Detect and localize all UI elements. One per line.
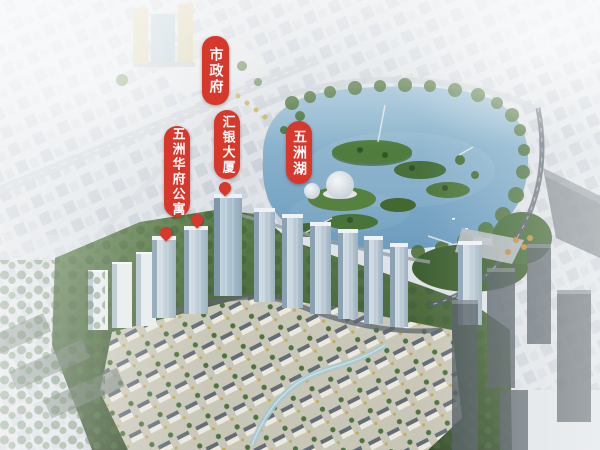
huiyin-tower-building xyxy=(214,188,242,296)
label-wuzhou-huafu-apartments: 五洲华府公寓 xyxy=(164,126,190,217)
label-city-government: 市政府 xyxy=(202,36,229,105)
label-huiyin-tower: 汇银大厦 xyxy=(214,110,240,179)
label-wuzhou-lake: 五洲湖 xyxy=(286,121,312,184)
scene-illustration xyxy=(0,0,600,450)
aerial-rendering: 市政府 汇银大厦 五洲华府公寓 五洲湖 xyxy=(0,0,600,450)
